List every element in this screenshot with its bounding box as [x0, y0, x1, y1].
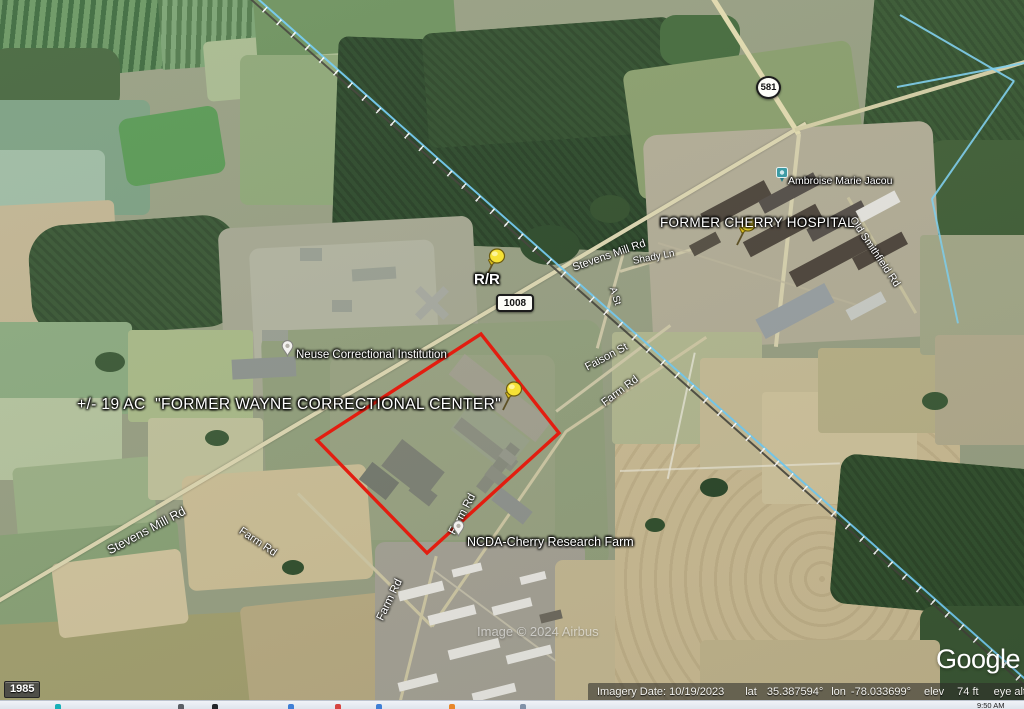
tree: [205, 430, 229, 446]
lon-value: -78.033699°: [851, 686, 911, 698]
tree: [700, 478, 728, 497]
lat-label: lat: [745, 686, 757, 698]
taskbar-icon[interactable]: [288, 704, 294, 709]
tree: [645, 518, 665, 532]
time-slider-year[interactable]: 1985: [4, 681, 40, 698]
satellite-map-viewport[interactable]: Stevens Mill Rd Stevens Mill Rd Farm Rd …: [0, 0, 1024, 701]
taskbar-clock: 9:50 AM: [977, 701, 1005, 709]
terrain-patch: [181, 464, 374, 592]
terrain-patch: [51, 548, 189, 638]
tree: [590, 195, 630, 223]
tree: [922, 392, 948, 410]
annotation-site: +/- 19 AC "FORMER WAYNE CORRECTIONAL CEN…: [77, 396, 501, 414]
photo-label-ambroise: Ambroise Marie Jacou: [788, 175, 892, 187]
terrain-patch: [935, 335, 1024, 445]
place-pin-ncda[interactable]: [452, 520, 465, 537]
taskbar: 9:50 AM: [0, 700, 1024, 709]
taskbar-icon[interactable]: [55, 704, 61, 709]
annotation-railroad: R/R: [474, 271, 500, 288]
imagery-credit: Image © 2024 Airbus: [477, 624, 599, 639]
place-pin-neuse[interactable]: [281, 340, 294, 357]
place-label-ncda: NCDA-Cherry Research Farm: [467, 535, 634, 549]
lon-label: lon: [831, 686, 846, 698]
building: [332, 300, 352, 312]
taskbar-icon[interactable]: [520, 704, 526, 709]
terrain-forest: [26, 213, 243, 339]
taskbar-icon[interactable]: [335, 704, 341, 709]
taskbar-icon[interactable]: [376, 704, 382, 709]
lat-value: 35.387594°: [767, 686, 823, 698]
google-logo: Google: [936, 644, 1020, 675]
building: [300, 248, 322, 261]
place-label-neuse: Neuse Correctional Institution: [296, 349, 447, 361]
photo-icon[interactable]: [775, 166, 789, 183]
google-earth-window: Stevens Mill Rd Stevens Mill Rd Farm Rd …: [0, 0, 1024, 709]
taskbar-icon[interactable]: [178, 704, 184, 709]
pushpin-site[interactable]: [499, 381, 523, 411]
status-bar: Imagery Date: 10/19/2023 lat 35.387594° …: [588, 683, 1024, 701]
route-shield-581: 581: [756, 76, 781, 99]
annotation-hospital: FORMER CHERRY HOSPITAL: [660, 215, 855, 230]
terrain-patch: [117, 105, 226, 188]
elev-value: 74 ft: [957, 686, 978, 698]
taskbar-icon[interactable]: [449, 704, 455, 709]
imagery-date: Imagery Date: 10/19/2023: [597, 686, 724, 698]
tree: [95, 352, 125, 372]
parking-lot: [232, 356, 297, 379]
taskbar-icon[interactable]: [212, 704, 218, 709]
eye-alt-label: eye alt: [994, 686, 1024, 698]
terrain-patch: [818, 348, 948, 433]
tree: [282, 560, 304, 575]
route-shield-1008: 1008: [496, 294, 534, 312]
elev-label: elev: [924, 686, 944, 698]
